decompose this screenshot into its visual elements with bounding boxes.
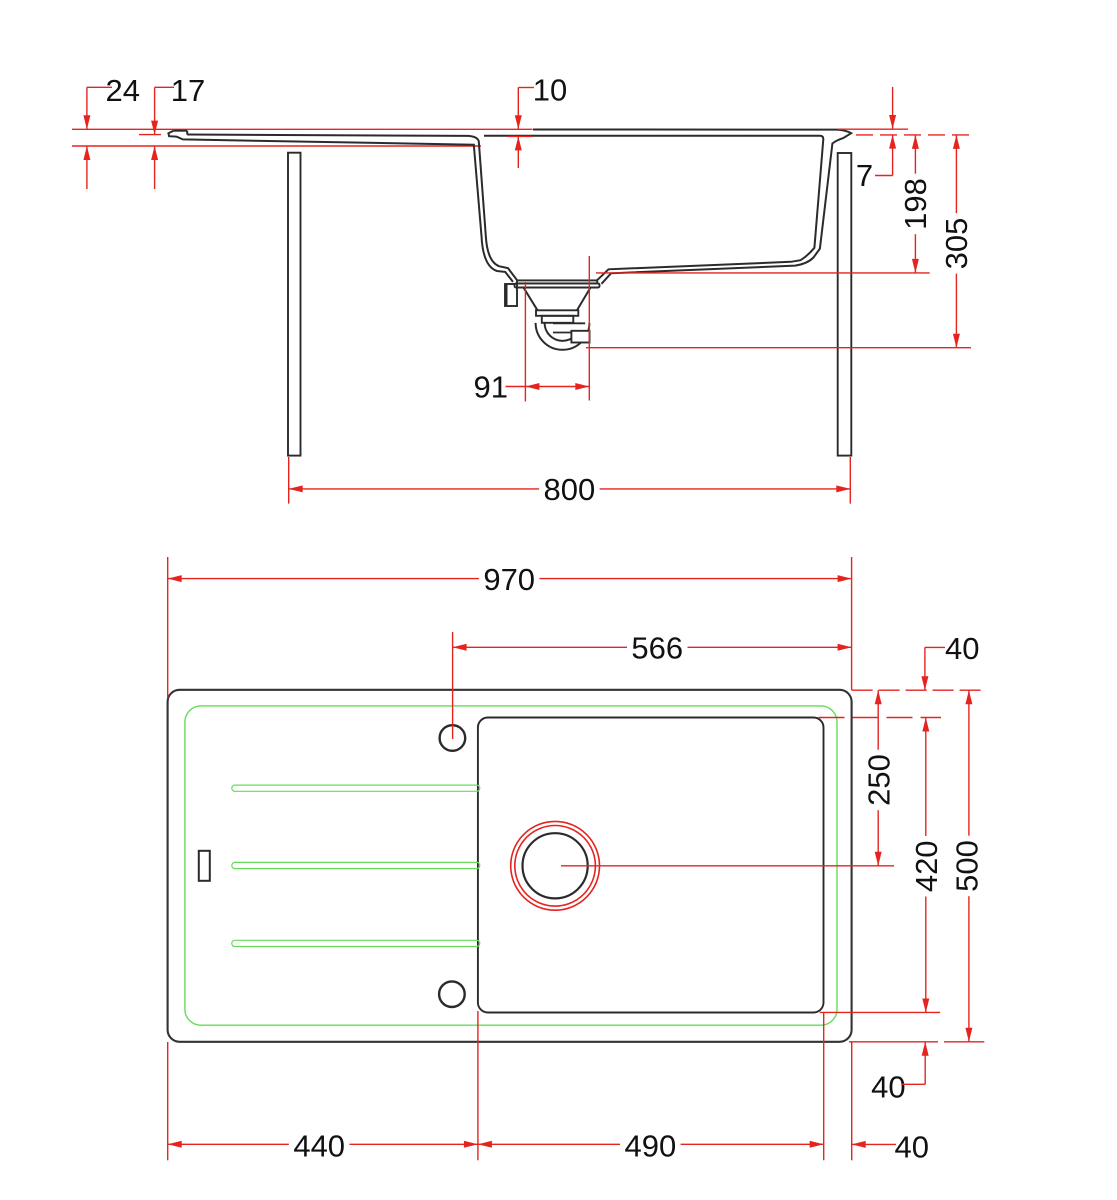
svg-text:970: 970	[483, 562, 535, 597]
svg-text:566: 566	[631, 631, 683, 666]
svg-text:40: 40	[895, 1130, 929, 1165]
svg-text:490: 490	[625, 1128, 677, 1163]
svg-text:440: 440	[293, 1128, 345, 1163]
svg-text:17: 17	[171, 73, 205, 108]
svg-text:198: 198	[898, 178, 933, 230]
svg-text:24: 24	[106, 73, 140, 108]
svg-text:91: 91	[474, 370, 508, 405]
svg-text:7: 7	[856, 158, 873, 193]
svg-text:500: 500	[950, 840, 985, 892]
svg-text:10: 10	[533, 73, 567, 108]
svg-text:305: 305	[939, 218, 974, 270]
svg-text:40: 40	[871, 1069, 905, 1104]
svg-text:420: 420	[909, 840, 944, 892]
svg-text:800: 800	[544, 472, 596, 507]
svg-text:40: 40	[945, 631, 979, 666]
svg-text:250: 250	[862, 754, 897, 806]
